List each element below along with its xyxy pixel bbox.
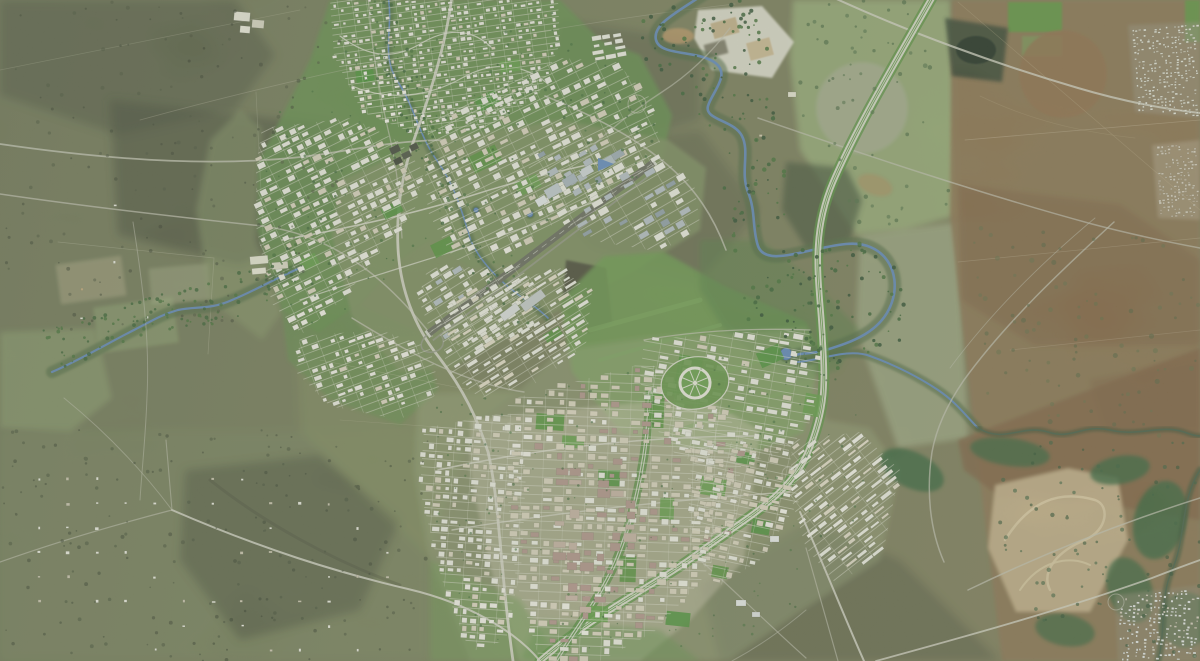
building [518,36,522,39]
building [1166,76,1169,78]
building [1167,206,1170,208]
building [1153,42,1155,44]
building [1174,633,1176,635]
building [531,532,539,537]
building [445,478,450,482]
building [403,98,406,101]
building [673,501,679,506]
building [1177,72,1179,74]
building [1184,179,1187,181]
building [556,479,568,485]
building [1137,53,1139,55]
building [625,605,632,610]
building [747,334,755,341]
building [1184,164,1186,166]
building [493,416,501,422]
building [1175,215,1178,217]
building [641,474,647,478]
building [470,618,477,623]
building [528,3,533,6]
building [96,477,98,480]
building [1173,179,1175,181]
building [463,609,467,614]
building [1155,600,1158,602]
building [413,69,418,73]
building [1157,102,1159,103]
building [1188,184,1191,186]
district-farms-ne-river [759,135,762,137]
building [1153,86,1155,88]
building [368,0,371,2]
building [1150,607,1152,609]
building [752,495,757,500]
building [1162,56,1164,58]
building [485,415,490,421]
building [650,509,657,515]
building [1152,90,1155,92]
building [351,34,355,37]
building [1181,106,1183,107]
building [745,484,751,490]
building [1164,654,1167,656]
building [451,66,455,69]
building [1194,43,1196,45]
building [662,483,668,488]
building [475,530,483,535]
building [1163,79,1164,80]
building [762,547,768,553]
building [509,588,514,593]
building [1181,25,1184,27]
building [1121,608,1123,610]
building [448,445,452,450]
building [1185,33,1187,34]
building [544,478,553,484]
building [611,385,619,389]
building [515,398,521,404]
building [800,362,807,368]
building [1161,146,1163,148]
building [680,599,685,603]
building [433,106,438,109]
building [332,55,337,58]
building [1166,166,1168,167]
building [1123,623,1126,624]
building [494,14,497,17]
building [495,73,500,76]
building [1153,629,1156,631]
building [1185,211,1188,213]
building [1143,653,1146,655]
building [1142,67,1144,69]
building [1127,620,1130,622]
building [1165,615,1168,617]
building [553,541,565,548]
building [1196,70,1198,72]
building [1162,190,1163,192]
building [425,95,429,98]
building [642,421,651,426]
building [428,62,433,66]
building [412,63,416,67]
building [1174,26,1176,28]
building [681,537,690,542]
building [463,578,470,582]
building [395,33,400,37]
building [1187,152,1189,154]
building [1158,173,1160,174]
building [503,26,506,29]
building [597,554,604,561]
building [1142,656,1144,658]
building [718,414,726,420]
building [626,500,635,508]
building [542,53,547,57]
building [1159,185,1162,187]
building [1187,96,1189,97]
building [1144,649,1146,650]
building [661,475,669,480]
building [1133,34,1135,36]
building [1175,608,1177,609]
building [396,41,399,44]
building [493,117,497,120]
building [766,481,772,487]
building [513,50,518,54]
building [511,38,514,42]
building [674,467,680,472]
building [1178,212,1181,214]
building [1146,94,1148,95]
building [1136,641,1139,643]
building [1178,186,1180,188]
building [1123,652,1125,654]
building [240,26,251,34]
building [1174,42,1176,44]
building [567,410,576,415]
building [347,2,350,5]
building [1160,98,1163,100]
building [1172,205,1174,207]
building [1169,643,1172,645]
building [252,19,265,28]
building [1175,81,1177,82]
building [476,432,481,437]
building [457,65,461,68]
building [398,66,403,69]
aerial-map-canvas: Aerial satellite view of urban masterpla… [0,0,1200,661]
building [639,526,646,532]
building [385,119,390,123]
building [543,506,549,510]
building [1189,76,1191,77]
building [471,626,476,631]
building [387,93,391,96]
building [682,563,687,569]
building [1175,611,1177,613]
building [414,18,417,22]
building [654,412,662,417]
building [427,108,431,111]
building [1157,146,1160,148]
building [637,536,646,540]
building [484,54,489,57]
building [554,31,558,35]
building [1185,80,1188,82]
building [586,517,595,521]
building [1159,76,1161,78]
building [1188,63,1191,64]
building [1160,643,1163,645]
building [421,17,425,21]
building [678,580,687,586]
building [1191,215,1193,216]
building [1194,48,1196,50]
building [354,2,359,5]
building [1186,78,1188,80]
building [1140,78,1142,80]
building [1178,32,1180,33]
building [475,563,480,566]
building [1138,29,1141,31]
building [428,10,432,13]
building [1185,65,1187,67]
building [1196,201,1199,202]
building [675,432,680,436]
building [468,95,472,98]
building [1178,75,1181,76]
building [504,425,510,431]
building [550,45,553,48]
building [1141,49,1143,51]
building [1178,636,1181,638]
building [1137,627,1139,629]
building [386,29,390,32]
building [635,368,640,372]
building [581,631,588,636]
building [521,540,527,544]
building [617,527,625,532]
building [1174,209,1176,211]
building [1160,96,1163,98]
building [1171,195,1173,197]
building [269,527,271,529]
building [1166,33,1168,35]
building [1176,181,1178,183]
building [352,40,356,43]
building [1164,150,1166,151]
building [477,545,482,550]
building [1183,161,1184,163]
building [125,502,127,504]
building [595,612,600,618]
building [379,81,384,85]
building [535,435,541,441]
building [1166,193,1168,194]
building [1182,194,1183,195]
building [636,588,645,592]
building [1181,61,1184,63]
building [1136,72,1138,74]
building [1141,608,1143,610]
building [685,449,692,453]
building [1192,187,1195,188]
building [520,531,528,536]
building [1180,175,1181,176]
building [626,613,631,618]
building [1144,646,1146,648]
building [1191,151,1193,153]
building [604,614,613,618]
building [435,494,440,499]
building [1138,97,1141,98]
building [1165,62,1167,64]
building [476,416,482,420]
building [1146,594,1148,596]
building [466,561,473,565]
building [1185,73,1187,74]
building [1194,148,1196,149]
building [602,420,607,425]
building [505,524,509,527]
building [343,22,346,25]
building [1158,180,1161,182]
building [1190,34,1193,35]
building [648,519,657,523]
building [1190,648,1192,649]
building [582,532,594,540]
building [1148,97,1150,99]
building [490,482,496,487]
building [1193,652,1196,654]
building [1144,639,1147,641]
building [1159,29,1161,30]
building [38,576,40,578]
building [684,494,689,498]
building [1159,202,1162,204]
building [1153,621,1155,623]
building [1188,182,1190,183]
building [530,566,537,571]
building [1132,30,1134,32]
building [438,132,441,134]
building [481,36,486,39]
building [1154,70,1157,72]
building [1184,619,1186,621]
building [547,409,554,415]
building [1151,595,1153,596]
building [619,481,625,487]
building [1146,599,1149,601]
building [400,26,404,30]
building [1136,43,1138,45]
building [704,534,709,539]
building [445,470,449,476]
building [1122,658,1124,660]
building [635,614,644,619]
building [394,80,399,84]
building [1133,39,1136,41]
building [711,501,716,507]
building [607,517,615,521]
building [1155,60,1157,62]
building [38,527,40,530]
building [465,447,471,452]
building [572,639,577,644]
building [1126,652,1128,653]
building [617,569,622,575]
building [555,521,564,526]
building [379,24,382,27]
building [436,486,441,490]
building [1174,84,1176,86]
building [1165,104,1167,106]
building [1145,614,1147,615]
building [598,480,609,488]
building [489,465,497,470]
building [341,9,344,12]
building [562,603,570,609]
building [524,427,531,431]
building [466,553,472,557]
building [1171,202,1173,203]
building [640,483,648,489]
building [529,54,533,57]
building [1141,80,1143,82]
building [474,24,477,27]
building [1181,103,1183,104]
building [1172,159,1174,161]
building [270,649,273,651]
building [551,52,554,55]
building [1181,593,1183,595]
building [496,27,499,30]
building [473,74,478,77]
building [501,6,505,10]
building [512,556,518,562]
building [1170,179,1172,181]
building [699,335,706,341]
building [375,56,380,59]
building [1192,77,1194,78]
building [754,433,760,439]
building [1178,179,1180,180]
building [764,448,769,453]
building [497,515,501,519]
building [1154,31,1157,33]
building [386,552,388,554]
building [634,377,640,383]
building [404,40,408,44]
building [1139,65,1141,67]
building [627,563,634,567]
building [1174,72,1177,73]
building [1186,633,1189,635]
building [1157,639,1160,641]
building [1182,39,1184,40]
building [1188,162,1191,164]
building [437,455,443,459]
building [1193,204,1195,205]
building [446,437,453,442]
building [299,649,301,652]
building [601,403,608,407]
building [550,6,554,9]
building [627,512,636,519]
building [395,85,400,88]
building [502,555,507,559]
building [1194,642,1196,644]
